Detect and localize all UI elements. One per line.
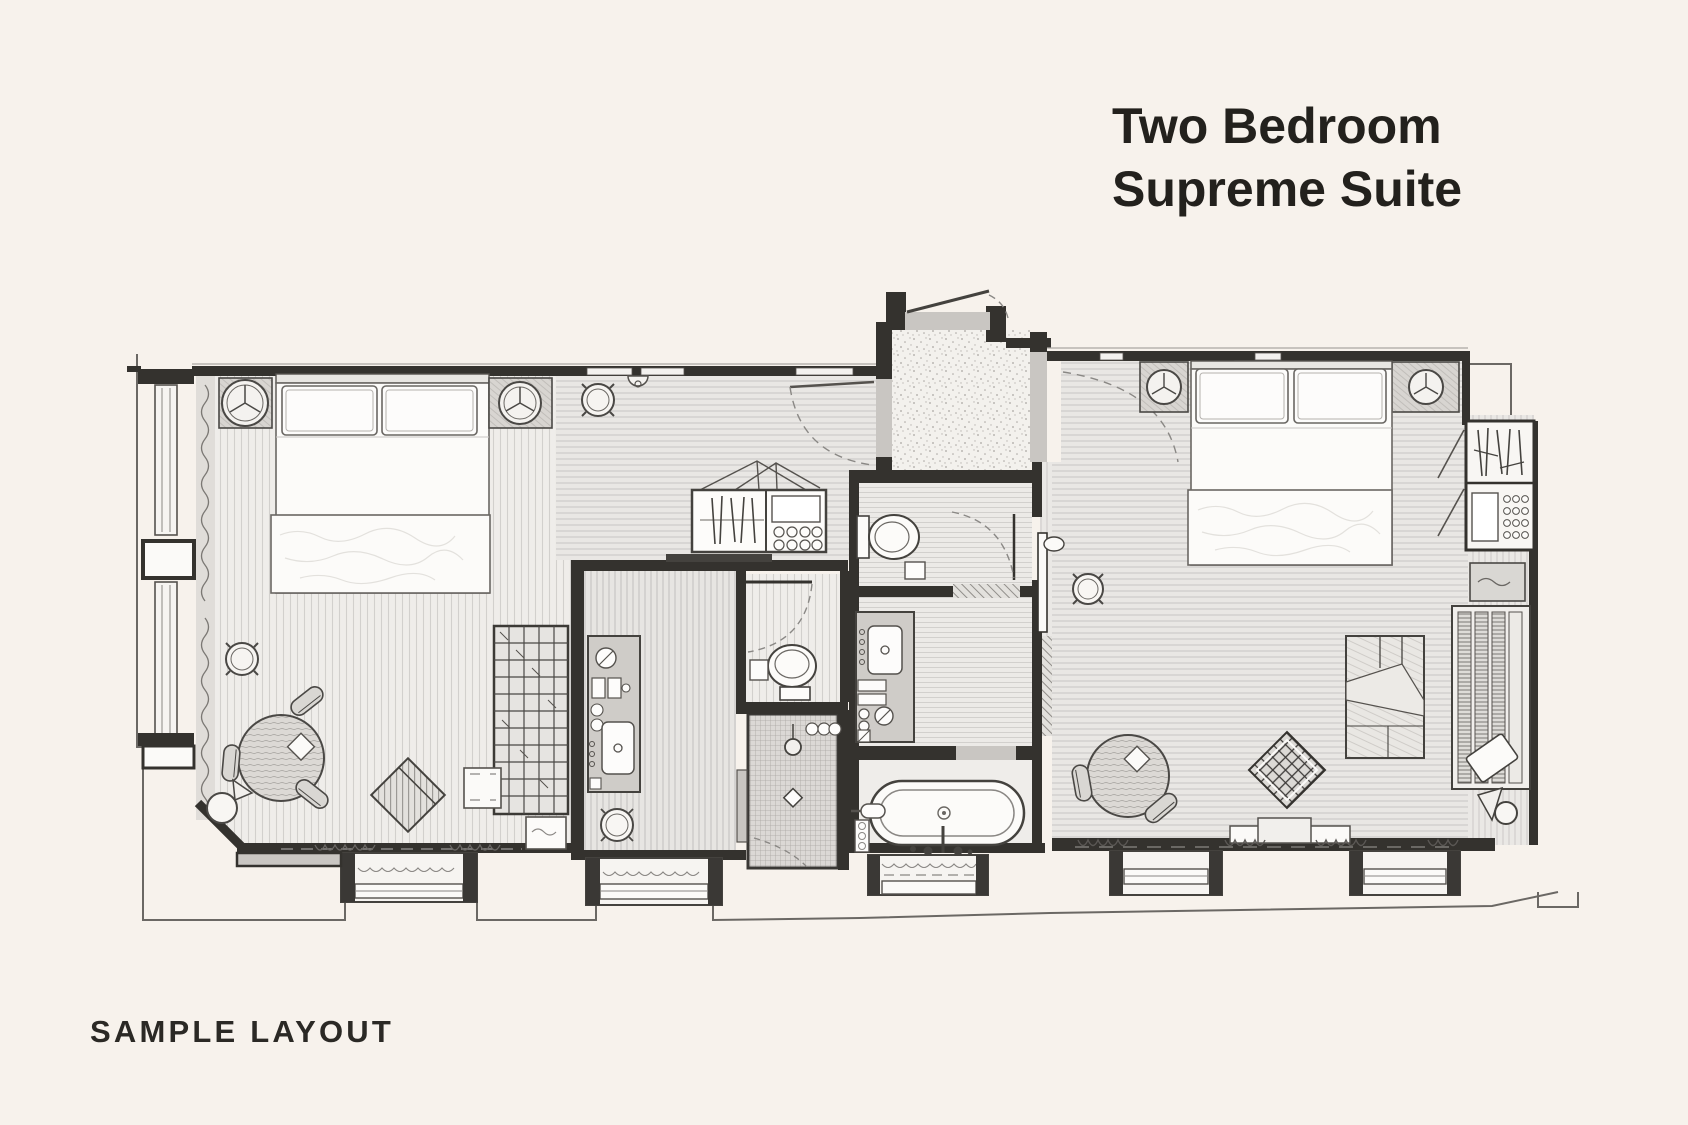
svg-text:SAMPLE LAYOUT: SAMPLE LAYOUT (90, 1014, 394, 1049)
svg-text:Supreme Suite: Supreme Suite (1112, 161, 1462, 217)
svg-text:Two Bedroom: Two Bedroom (1112, 98, 1442, 154)
